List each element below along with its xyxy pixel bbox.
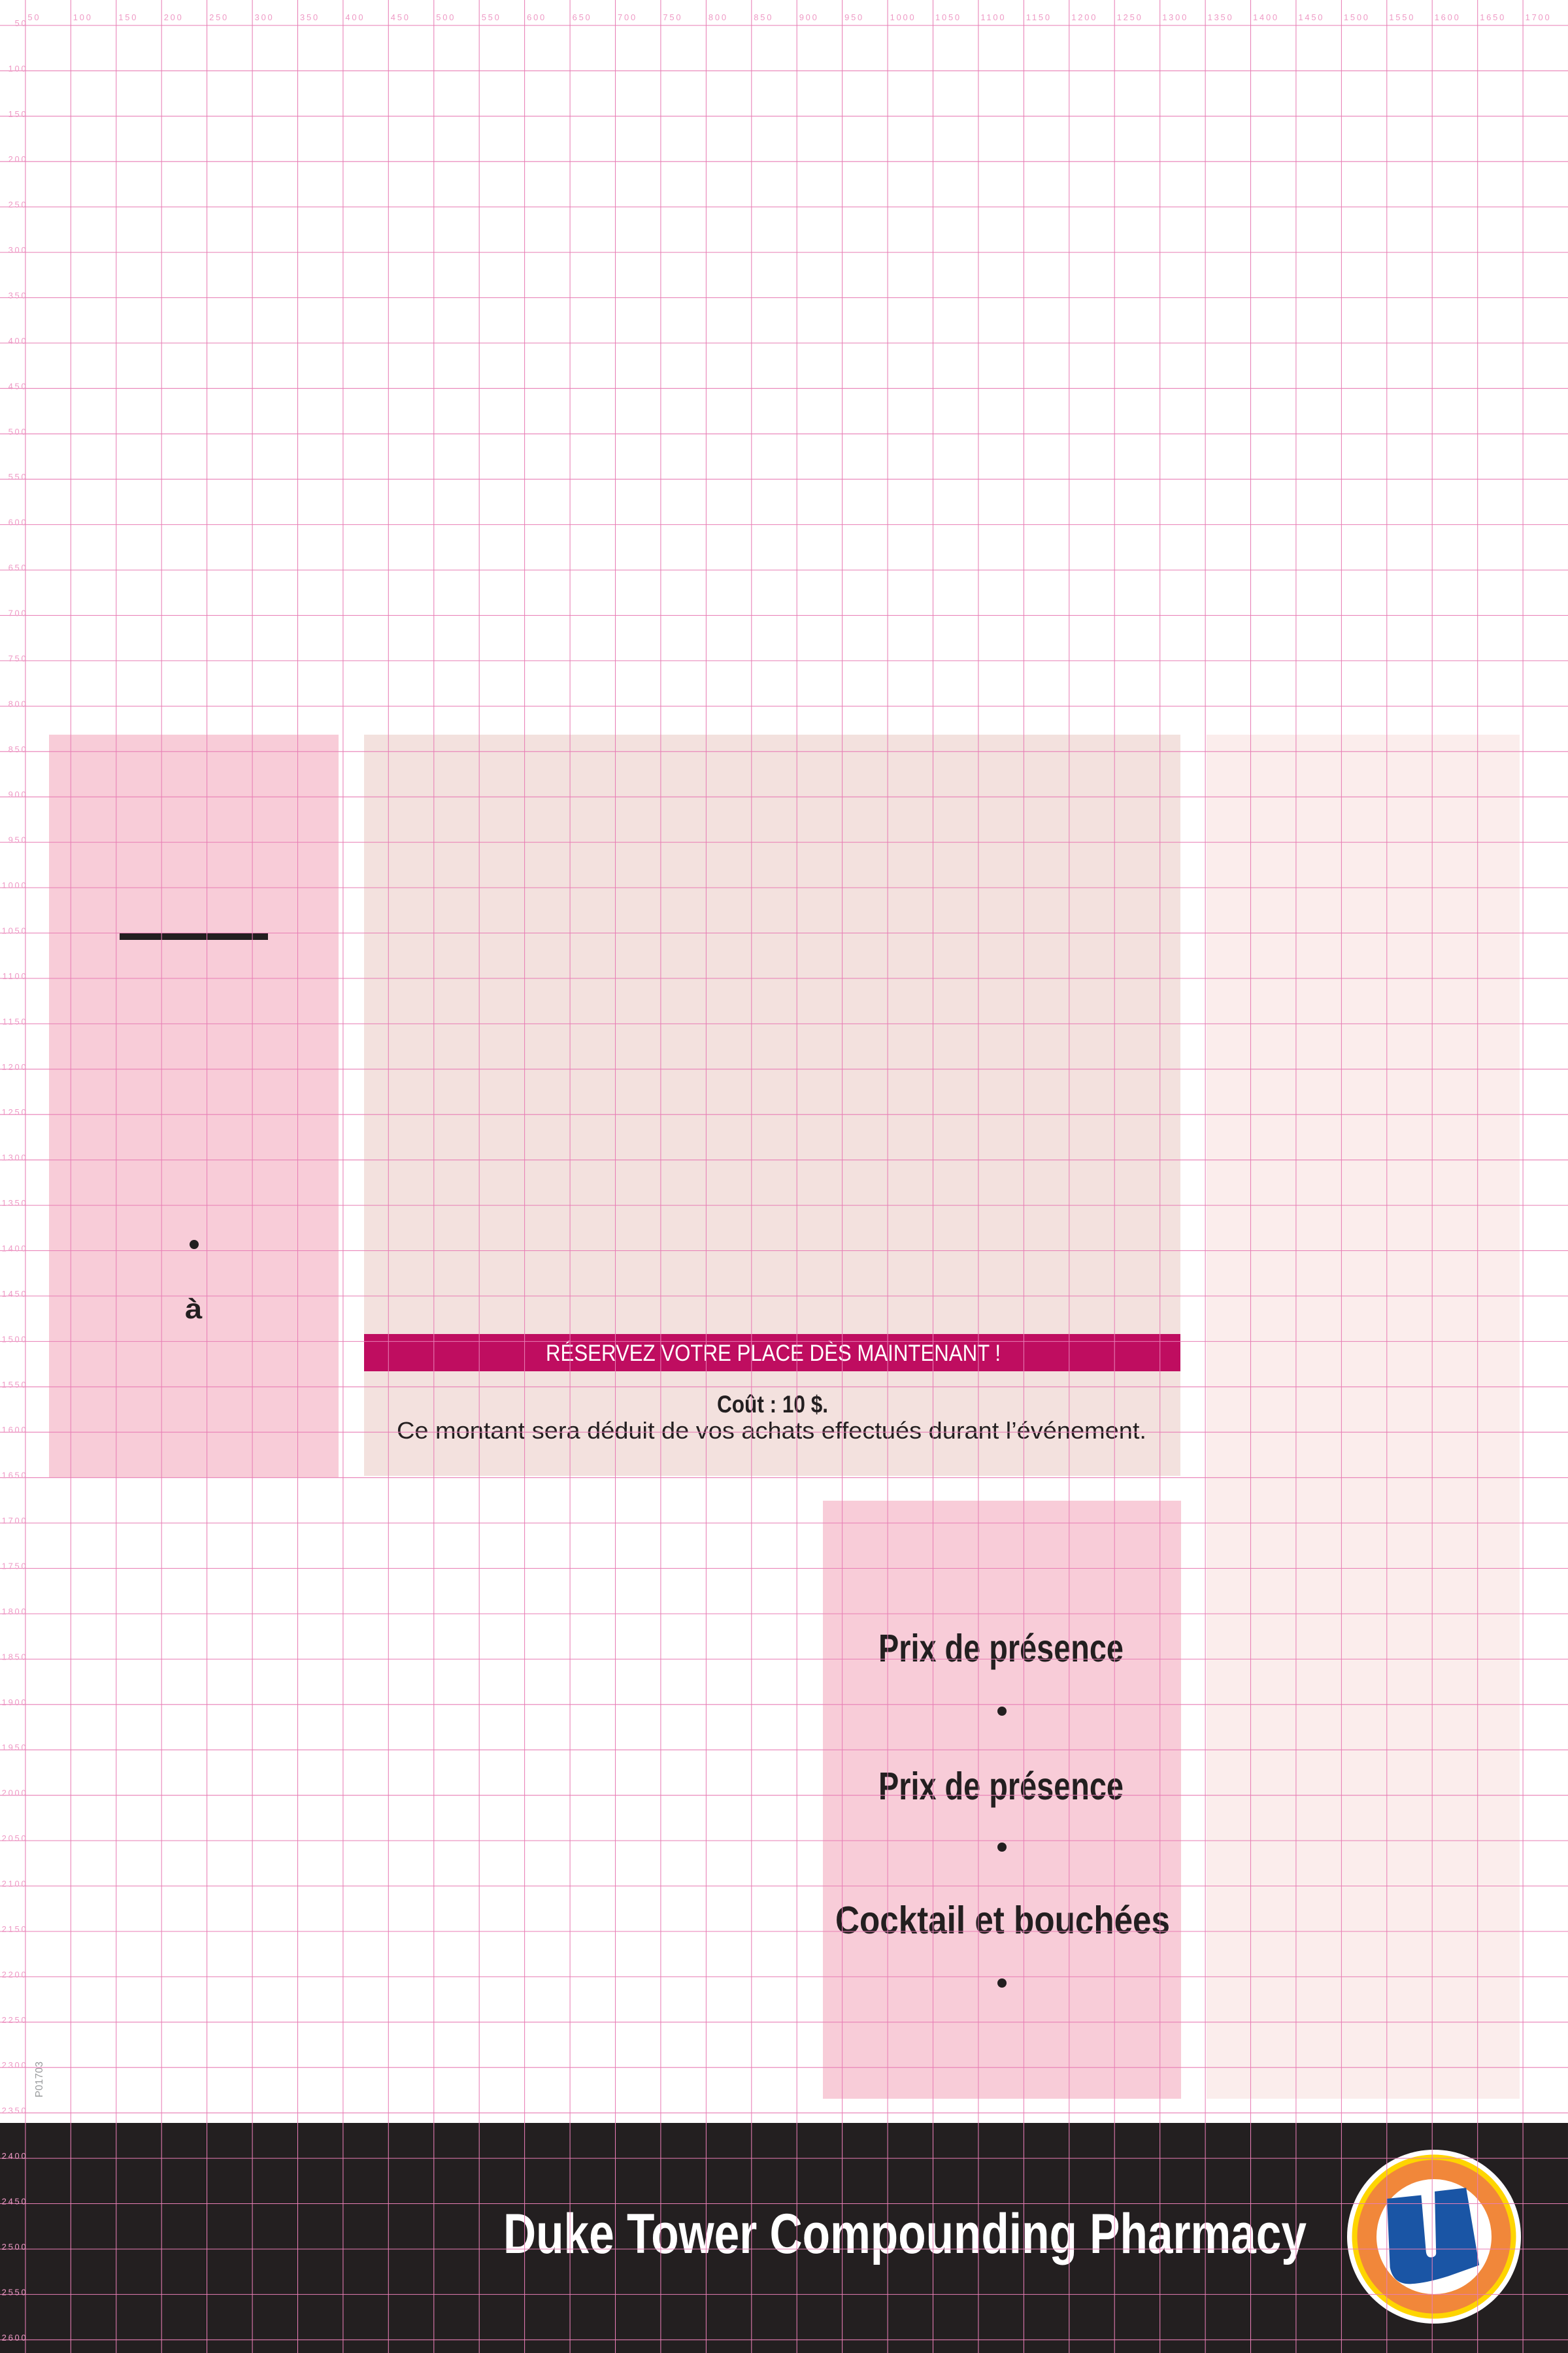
svg-text:450: 450 [8,381,28,391]
svg-text:250: 250 [8,200,28,210]
svg-text:1650: 1650 [2,1471,28,1480]
svg-text:250: 250 [209,12,229,22]
svg-text:1000: 1000 [890,12,916,22]
svg-text:1600: 1600 [1435,12,1461,22]
svg-text:750: 750 [663,12,682,22]
svg-text:1850: 1850 [2,1652,28,1661]
svg-text:700: 700 [8,609,28,618]
svg-text:1200: 1200 [2,1062,28,1072]
svg-text:500: 500 [436,12,456,22]
svg-text:750: 750 [8,654,28,663]
svg-text:100: 100 [73,12,93,22]
svg-text:1550: 1550 [1389,12,1415,22]
svg-text:1350: 1350 [1208,12,1234,22]
svg-text:200: 200 [8,154,28,164]
svg-text:900: 900 [799,12,819,22]
svg-text:1150: 1150 [1026,12,1052,22]
svg-text:2550: 2550 [2,2287,28,2297]
svg-text:2150: 2150 [2,1924,28,1934]
svg-text:1350: 1350 [2,1198,28,1208]
svg-text:100: 100 [8,63,28,73]
svg-text:2250: 2250 [2,2015,28,2025]
svg-text:1700: 1700 [1526,12,1552,22]
svg-text:50: 50 [27,12,41,22]
svg-text:650: 650 [573,12,592,22]
svg-text:2600: 2600 [2,2333,28,2343]
svg-text:1200: 1200 [1071,12,1097,22]
svg-text:1650: 1650 [1480,12,1506,22]
svg-text:600: 600 [527,12,546,22]
svg-text:2300: 2300 [2,2060,28,2070]
svg-text:1100: 1100 [980,12,1006,22]
svg-text:1950: 1950 [2,1743,28,1752]
svg-text:1150: 1150 [3,1016,28,1026]
svg-text:2500: 2500 [2,2242,28,2252]
svg-text:300: 300 [255,12,275,22]
svg-text:500: 500 [8,427,28,437]
svg-text:550: 550 [482,12,501,22]
svg-text:200: 200 [164,12,184,22]
svg-text:1000: 1000 [2,880,28,890]
svg-text:2350: 2350 [2,2106,28,2116]
svg-text:900: 900 [8,790,28,799]
svg-text:850: 850 [754,12,773,22]
svg-text:800: 800 [8,699,28,709]
svg-text:1050: 1050 [2,926,28,936]
svg-text:1750: 1750 [2,1561,28,1571]
svg-text:2100: 2100 [2,1879,28,1889]
svg-text:700: 700 [618,12,637,22]
svg-text:1250: 1250 [2,1107,28,1117]
svg-text:1400: 1400 [2,1244,28,1254]
svg-text:1250: 1250 [1117,12,1143,22]
svg-text:1300: 1300 [2,1153,28,1163]
svg-text:1600: 1600 [2,1425,28,1435]
svg-text:550: 550 [8,472,28,482]
svg-text:2400: 2400 [2,2151,28,2161]
svg-text:300: 300 [8,245,28,255]
svg-text:1050: 1050 [935,12,961,22]
svg-text:1700: 1700 [2,1516,28,1526]
svg-text:350: 350 [300,12,320,22]
svg-text:1800: 1800 [2,1607,28,1616]
svg-text:1450: 1450 [2,1289,28,1299]
svg-text:400: 400 [345,12,365,22]
svg-text:1450: 1450 [1298,12,1324,22]
svg-text:600: 600 [8,518,28,527]
svg-text:650: 650 [8,563,28,573]
svg-text:2050: 2050 [2,1833,28,1843]
svg-text:2000: 2000 [2,1788,28,1798]
svg-text:50: 50 [15,18,28,28]
svg-text:850: 850 [8,744,28,754]
svg-text:150: 150 [8,109,28,119]
svg-text:150: 150 [118,12,138,22]
svg-text:950: 950 [844,12,864,22]
svg-text:1500: 1500 [1344,12,1370,22]
svg-text:1550: 1550 [2,1380,28,1390]
svg-text:1400: 1400 [1253,12,1279,22]
svg-text:2200: 2200 [2,1969,28,1979]
svg-text:400: 400 [8,336,28,346]
svg-text:800: 800 [709,12,728,22]
svg-text:350: 350 [8,291,28,301]
svg-text:1500: 1500 [2,1334,28,1344]
svg-text:950: 950 [8,835,28,845]
svg-text:1300: 1300 [1162,12,1188,22]
svg-text:1900: 1900 [2,1697,28,1707]
svg-text:450: 450 [391,12,410,22]
svg-text:1100: 1100 [3,971,28,981]
svg-text:2450: 2450 [2,2197,28,2207]
